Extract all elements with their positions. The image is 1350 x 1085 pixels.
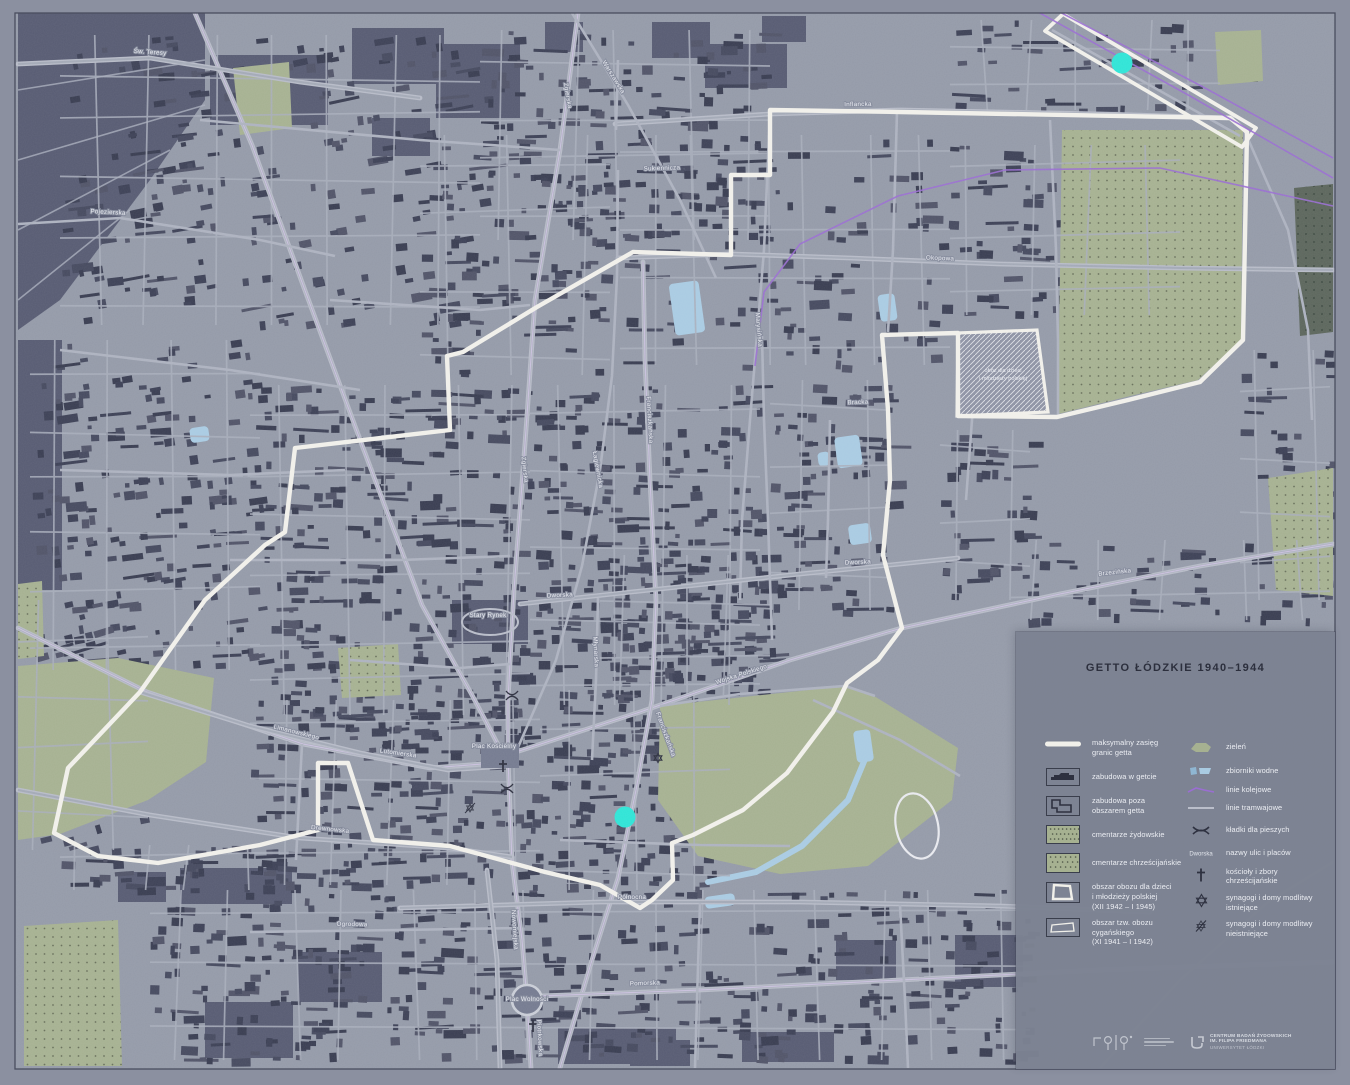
legend-label: synagogi i domy modlitwynieistniejące	[1226, 919, 1313, 938]
legend-item-rail: linie kolejowe	[1186, 785, 1332, 795]
bldg-outline-swatch	[1044, 796, 1082, 816]
star-broken-swatch	[1186, 919, 1216, 933]
legend-column-right: zieleńzbiorniki wodnelinie kolejowelinie…	[1186, 740, 1332, 938]
map-poster: obóz dla dziecii młodzieży polskiejZgier…	[0, 0, 1350, 1085]
legend-item-camp-children: obszar obozu dla dziecii młodzieży polsk…	[1044, 882, 1184, 911]
legend-item-green: zieleń	[1186, 740, 1332, 754]
legend-item-cem-jew: cmentarze żydowskie	[1044, 825, 1184, 844]
university-logo-icon	[1190, 1035, 1205, 1050]
svg-text:Dworska: Dworska	[1189, 851, 1213, 857]
partner-logo-marks	[1092, 1031, 1138, 1053]
legend-label: kładki dla pieszych	[1226, 825, 1290, 835]
partner-logo	[1092, 1031, 1174, 1053]
legend-item-star: synagogi i domy modlitwyistniejące	[1186, 893, 1332, 912]
camp-gypsy-swatch	[1044, 918, 1082, 937]
legend-item-camp-gypsy: obszar tzw. obozucygańskiego(XI 1941 – I…	[1044, 918, 1184, 947]
legend-label: cmentarze chrześcijańskie	[1092, 858, 1181, 868]
bridge-swatch	[1186, 823, 1216, 837]
legend-item-tram: linie tramwajowe	[1186, 803, 1332, 813]
cem-chr-swatch	[1044, 853, 1082, 873]
legend-item-star-broken: synagogi i domy modlitwynieistniejące	[1186, 919, 1332, 938]
map-title: GETTO ŁÓDZKIE 1940–1944	[1026, 662, 1325, 674]
legend-item-bldg-outline: zabudowa pozaobszarem getta	[1044, 796, 1184, 816]
credit-line-2: IM. FILIPA FRIEDMANA	[1210, 1039, 1292, 1044]
legend-label: kościoły i zborychrześcijańskie	[1226, 867, 1278, 886]
legend-label: zbiorniki wodne	[1226, 766, 1278, 776]
star-swatch	[1186, 893, 1216, 908]
legend-item-boundary: maksymalny zasięggranic getta	[1044, 738, 1184, 757]
legend-item-bridge: kładki dla pieszych	[1186, 823, 1332, 837]
rail-swatch	[1186, 785, 1216, 795]
legend-label: linie kolejowe	[1226, 785, 1271, 795]
legend-label: cmentarze żydowskie	[1092, 830, 1165, 840]
boundary-swatch	[1044, 738, 1082, 750]
water-swatch	[1186, 765, 1216, 776]
bldg-dark-swatch	[1044, 768, 1082, 786]
legend-item-cross: kościoły i zborychrześcijańskie	[1186, 867, 1332, 886]
legend-item-cem-chr: cmentarze chrześcijańskie	[1044, 853, 1184, 873]
credits: CENTRUM BADAŃ ŻYDOWSKICH IM. FILIPA FRIE…	[1092, 1031, 1292, 1053]
legend-label: obszar obozu dla dziecii młodzieży polsk…	[1092, 882, 1172, 911]
tram-swatch	[1186, 805, 1216, 811]
legend-label: zabudowa w getcie	[1092, 772, 1157, 782]
legend-label: maksymalny zasięggranic getta	[1092, 738, 1158, 757]
legend-item-bldg-dark: zabudowa w getcie	[1044, 768, 1184, 786]
legend-label: obszar tzw. obozucygańskiego(XI 1941 – I…	[1092, 918, 1153, 947]
legend-label: linie tramwajowe	[1226, 803, 1282, 813]
credit-line-3: UNIWERSYTET ŁÓDZKI	[1210, 1045, 1292, 1050]
legend-panel: GETTO ŁÓDZKIE 1940–1944 maksymalny zasię…	[1016, 632, 1335, 1069]
cross-swatch	[1186, 867, 1216, 883]
legend-item-streetname: Dworskanazwy ulic i placów	[1186, 848, 1332, 858]
legend-label: zieleń	[1226, 742, 1246, 752]
legend-label: zabudowa pozaobszarem getta	[1092, 796, 1145, 815]
legend-column-left: maksymalny zasięggranic gettazabudowa w …	[1044, 738, 1184, 947]
green-swatch	[1186, 740, 1216, 754]
partner-logo-text	[1144, 1038, 1174, 1047]
center-logo-text: CENTRUM BADAŃ ŻYDOWSKICH IM. FILIPA FRIE…	[1210, 1034, 1292, 1050]
camp-children-swatch	[1044, 882, 1082, 903]
legend-label: synagogi i domy modlitwyistniejące	[1226, 893, 1313, 912]
cem-jew-swatch	[1044, 825, 1082, 844]
legend-item-water: zbiorniki wodne	[1186, 765, 1332, 776]
legend-label: nazwy ulic i placów	[1226, 848, 1291, 858]
center-logo: CENTRUM BADAŃ ŻYDOWSKICH IM. FILIPA FRIE…	[1190, 1034, 1292, 1050]
streetname-swatch: Dworska	[1186, 848, 1216, 858]
